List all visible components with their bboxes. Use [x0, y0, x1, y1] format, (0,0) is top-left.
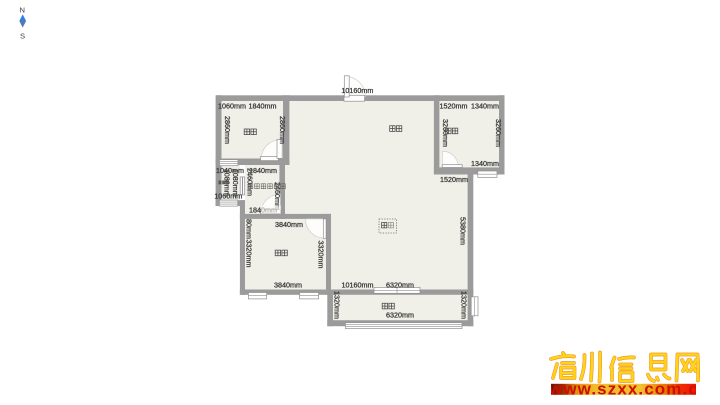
- svg-text:1520mm: 1520mm: [440, 175, 468, 184]
- svg-text:S: S: [20, 32, 25, 41]
- svg-text:10160mm: 10160mm: [341, 86, 373, 95]
- svg-text:1060mm: 1060mm: [218, 102, 246, 111]
- svg-text:6320mm: 6320mm: [386, 311, 414, 320]
- svg-text:N: N: [20, 6, 25, 15]
- svg-text:2860mm: 2860mm: [278, 116, 287, 144]
- svg-text:5380mm: 5380mm: [459, 217, 468, 245]
- svg-text:3260mm: 3260mm: [494, 119, 503, 147]
- svg-text:3320mm: 3320mm: [317, 241, 326, 269]
- svg-text:3320mm: 3320mm: [245, 240, 254, 268]
- svg-text:1340mm: 1340mm: [471, 159, 499, 168]
- svg-text:1320mm: 1320mm: [460, 291, 469, 319]
- svg-text:1340mm: 1340mm: [471, 102, 499, 111]
- svg-text:6320mm: 6320mm: [386, 281, 414, 290]
- svg-text:1320mm: 1320mm: [333, 291, 342, 319]
- svg-text:2860mm: 2860mm: [223, 116, 232, 144]
- svg-text:1080mm: 1080mm: [231, 169, 240, 197]
- svg-text:1840mm: 1840mm: [249, 102, 277, 111]
- svg-text:3840mm: 3840mm: [274, 280, 302, 289]
- svg-text:3840mm: 3840mm: [275, 220, 303, 229]
- svg-text:2460mm: 2460mm: [245, 168, 254, 196]
- svg-text:10160mm: 10160mm: [342, 281, 374, 290]
- svg-text:1520mm: 1520mm: [440, 102, 468, 111]
- svg-text:80mm: 80mm: [245, 219, 254, 239]
